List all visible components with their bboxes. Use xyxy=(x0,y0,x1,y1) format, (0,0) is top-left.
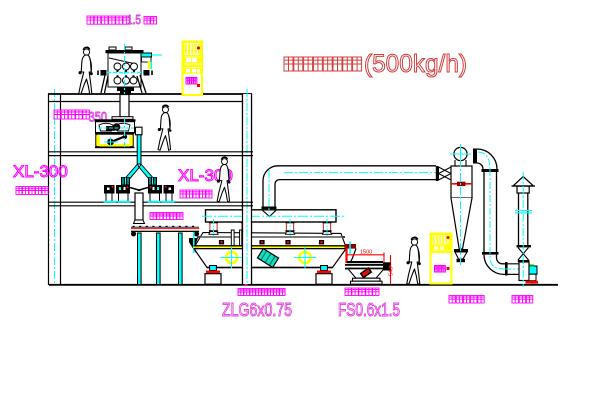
svg-text:XL-300: XL-300 xyxy=(13,162,68,181)
svg-text:1500: 1500 xyxy=(360,250,372,256)
svg-text:1.5: 1.5 xyxy=(127,12,141,27)
svg-text:(500kg/h): (500kg/h) xyxy=(364,50,467,78)
svg-text:ZLG6x0.75: ZLG6x0.75 xyxy=(222,300,292,320)
svg-text:FS0.6x1.5: FS0.6x1.5 xyxy=(338,300,400,320)
